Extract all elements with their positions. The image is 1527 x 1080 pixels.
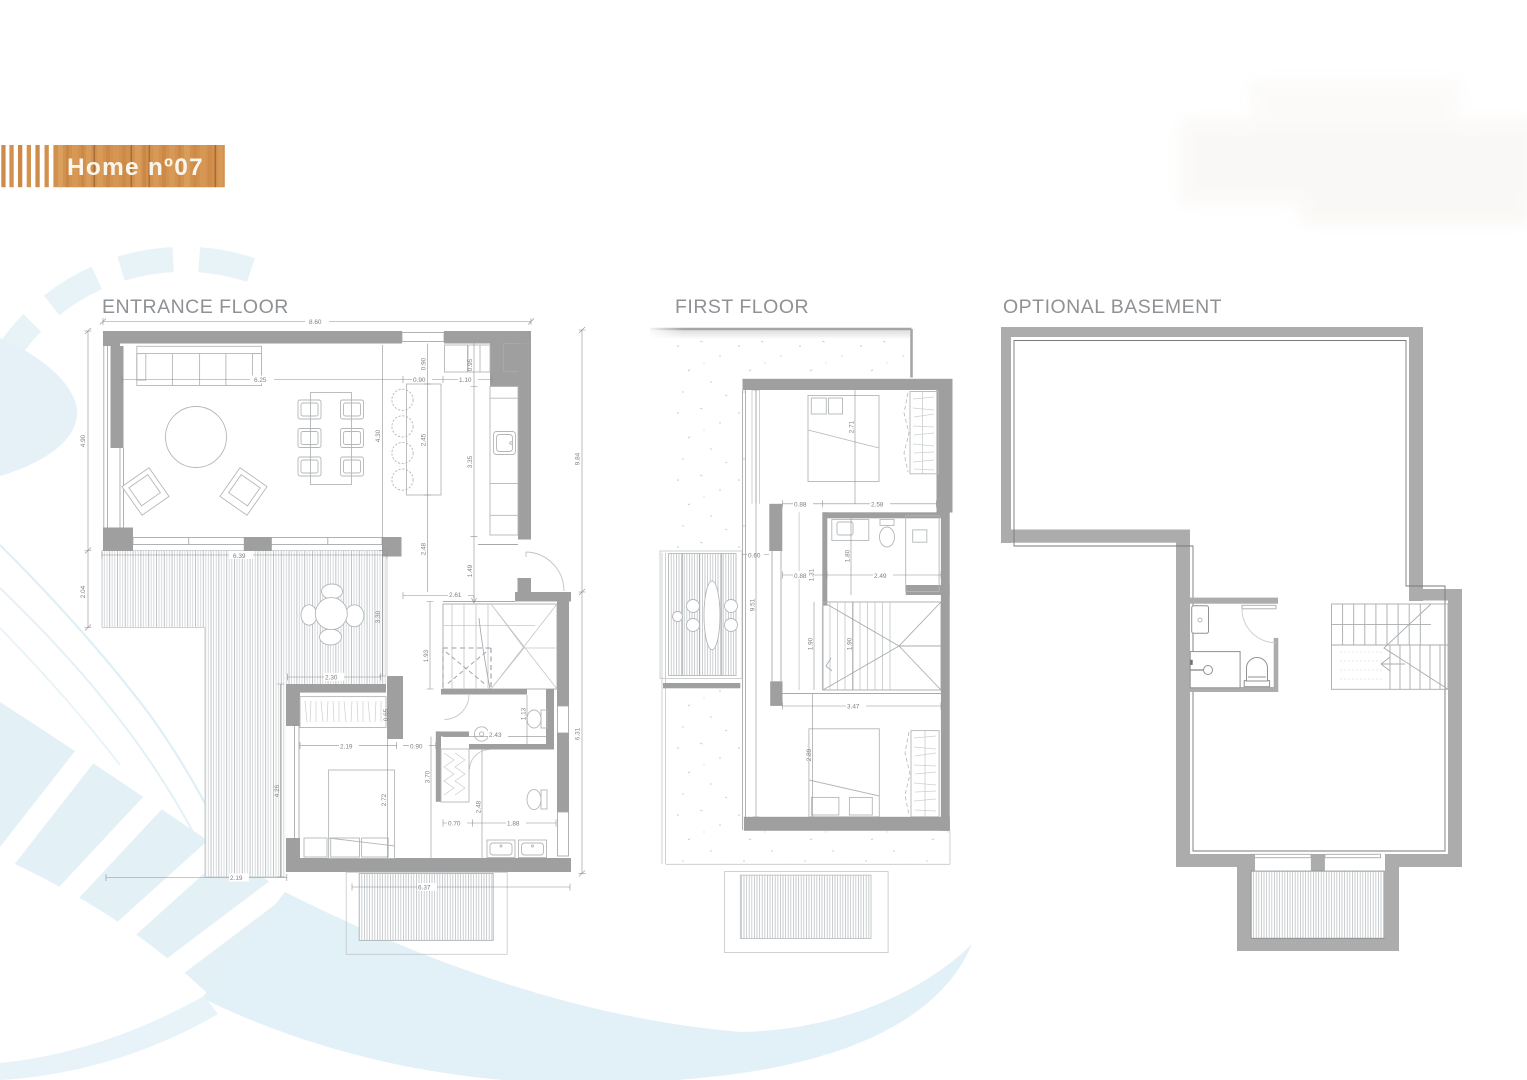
- svg-text:0.90: 0.90: [421, 357, 428, 370]
- svg-text:2.43: 2.43: [489, 732, 502, 739]
- svg-text:2.72: 2.72: [381, 793, 388, 806]
- svg-text:1.10: 1.10: [459, 377, 472, 384]
- svg-text:1.49: 1.49: [467, 564, 474, 577]
- svg-text:1.90: 1.90: [847, 637, 854, 650]
- svg-text:2.48: 2.48: [476, 800, 483, 813]
- svg-text:4.30: 4.30: [375, 429, 382, 442]
- svg-text:1.31: 1.31: [809, 568, 816, 581]
- svg-text:0.70: 0.70: [448, 821, 461, 828]
- svg-text:3.35: 3.35: [467, 455, 474, 468]
- svg-text:8.60: 8.60: [309, 319, 322, 326]
- svg-text:9.51: 9.51: [750, 598, 757, 611]
- svg-text:3.30: 3.30: [375, 610, 382, 623]
- svg-text:2.19: 2.19: [340, 743, 353, 750]
- svg-text:4.26: 4.26: [274, 784, 281, 797]
- svg-text:Home nº07: Home nº07: [67, 154, 204, 181]
- svg-text:9.84: 9.84: [575, 452, 582, 465]
- svg-text:0.88: 0.88: [794, 573, 807, 580]
- svg-text:2.04: 2.04: [80, 585, 87, 598]
- svg-text:2.48: 2.48: [421, 542, 428, 555]
- svg-text:0.60: 0.60: [748, 552, 761, 559]
- svg-text:2.45: 2.45: [421, 433, 428, 446]
- svg-text:2.89: 2.89: [806, 748, 813, 761]
- svg-text:2.58: 2.58: [871, 502, 884, 509]
- svg-text:2.71: 2.71: [849, 420, 856, 433]
- svg-text:6.25: 6.25: [254, 377, 267, 384]
- svg-text:0.88: 0.88: [794, 502, 807, 509]
- svg-text:1.93: 1.93: [423, 649, 430, 662]
- svg-text:FIRST FLOOR: FIRST FLOOR: [675, 296, 809, 318]
- svg-text:1.13: 1.13: [521, 707, 528, 720]
- svg-text:4.90: 4.90: [80, 434, 87, 447]
- svg-text:0.90: 0.90: [410, 743, 423, 750]
- svg-text:OPTIONAL BASEMENT: OPTIONAL BASEMENT: [1003, 296, 1222, 318]
- svg-text:1.80: 1.80: [845, 549, 852, 562]
- svg-text:3.47: 3.47: [847, 704, 860, 711]
- svg-text:6.31: 6.31: [575, 727, 582, 740]
- svg-text:2.61: 2.61: [449, 592, 462, 599]
- svg-text:0.95: 0.95: [467, 358, 474, 371]
- svg-text:6.37: 6.37: [418, 885, 431, 892]
- svg-text:6.39: 6.39: [233, 553, 246, 560]
- svg-text:0.90: 0.90: [413, 377, 426, 384]
- svg-text:1.88: 1.88: [507, 821, 520, 828]
- svg-text:3.70: 3.70: [425, 770, 432, 783]
- svg-text:2.30: 2.30: [325, 675, 338, 682]
- svg-text:2.19: 2.19: [230, 875, 243, 882]
- svg-text:ENTRANCE FLOOR: ENTRANCE FLOOR: [102, 296, 289, 318]
- svg-text:2.49: 2.49: [874, 573, 887, 580]
- svg-text:1.90: 1.90: [808, 637, 815, 650]
- svg-text:0.65: 0.65: [383, 708, 390, 721]
